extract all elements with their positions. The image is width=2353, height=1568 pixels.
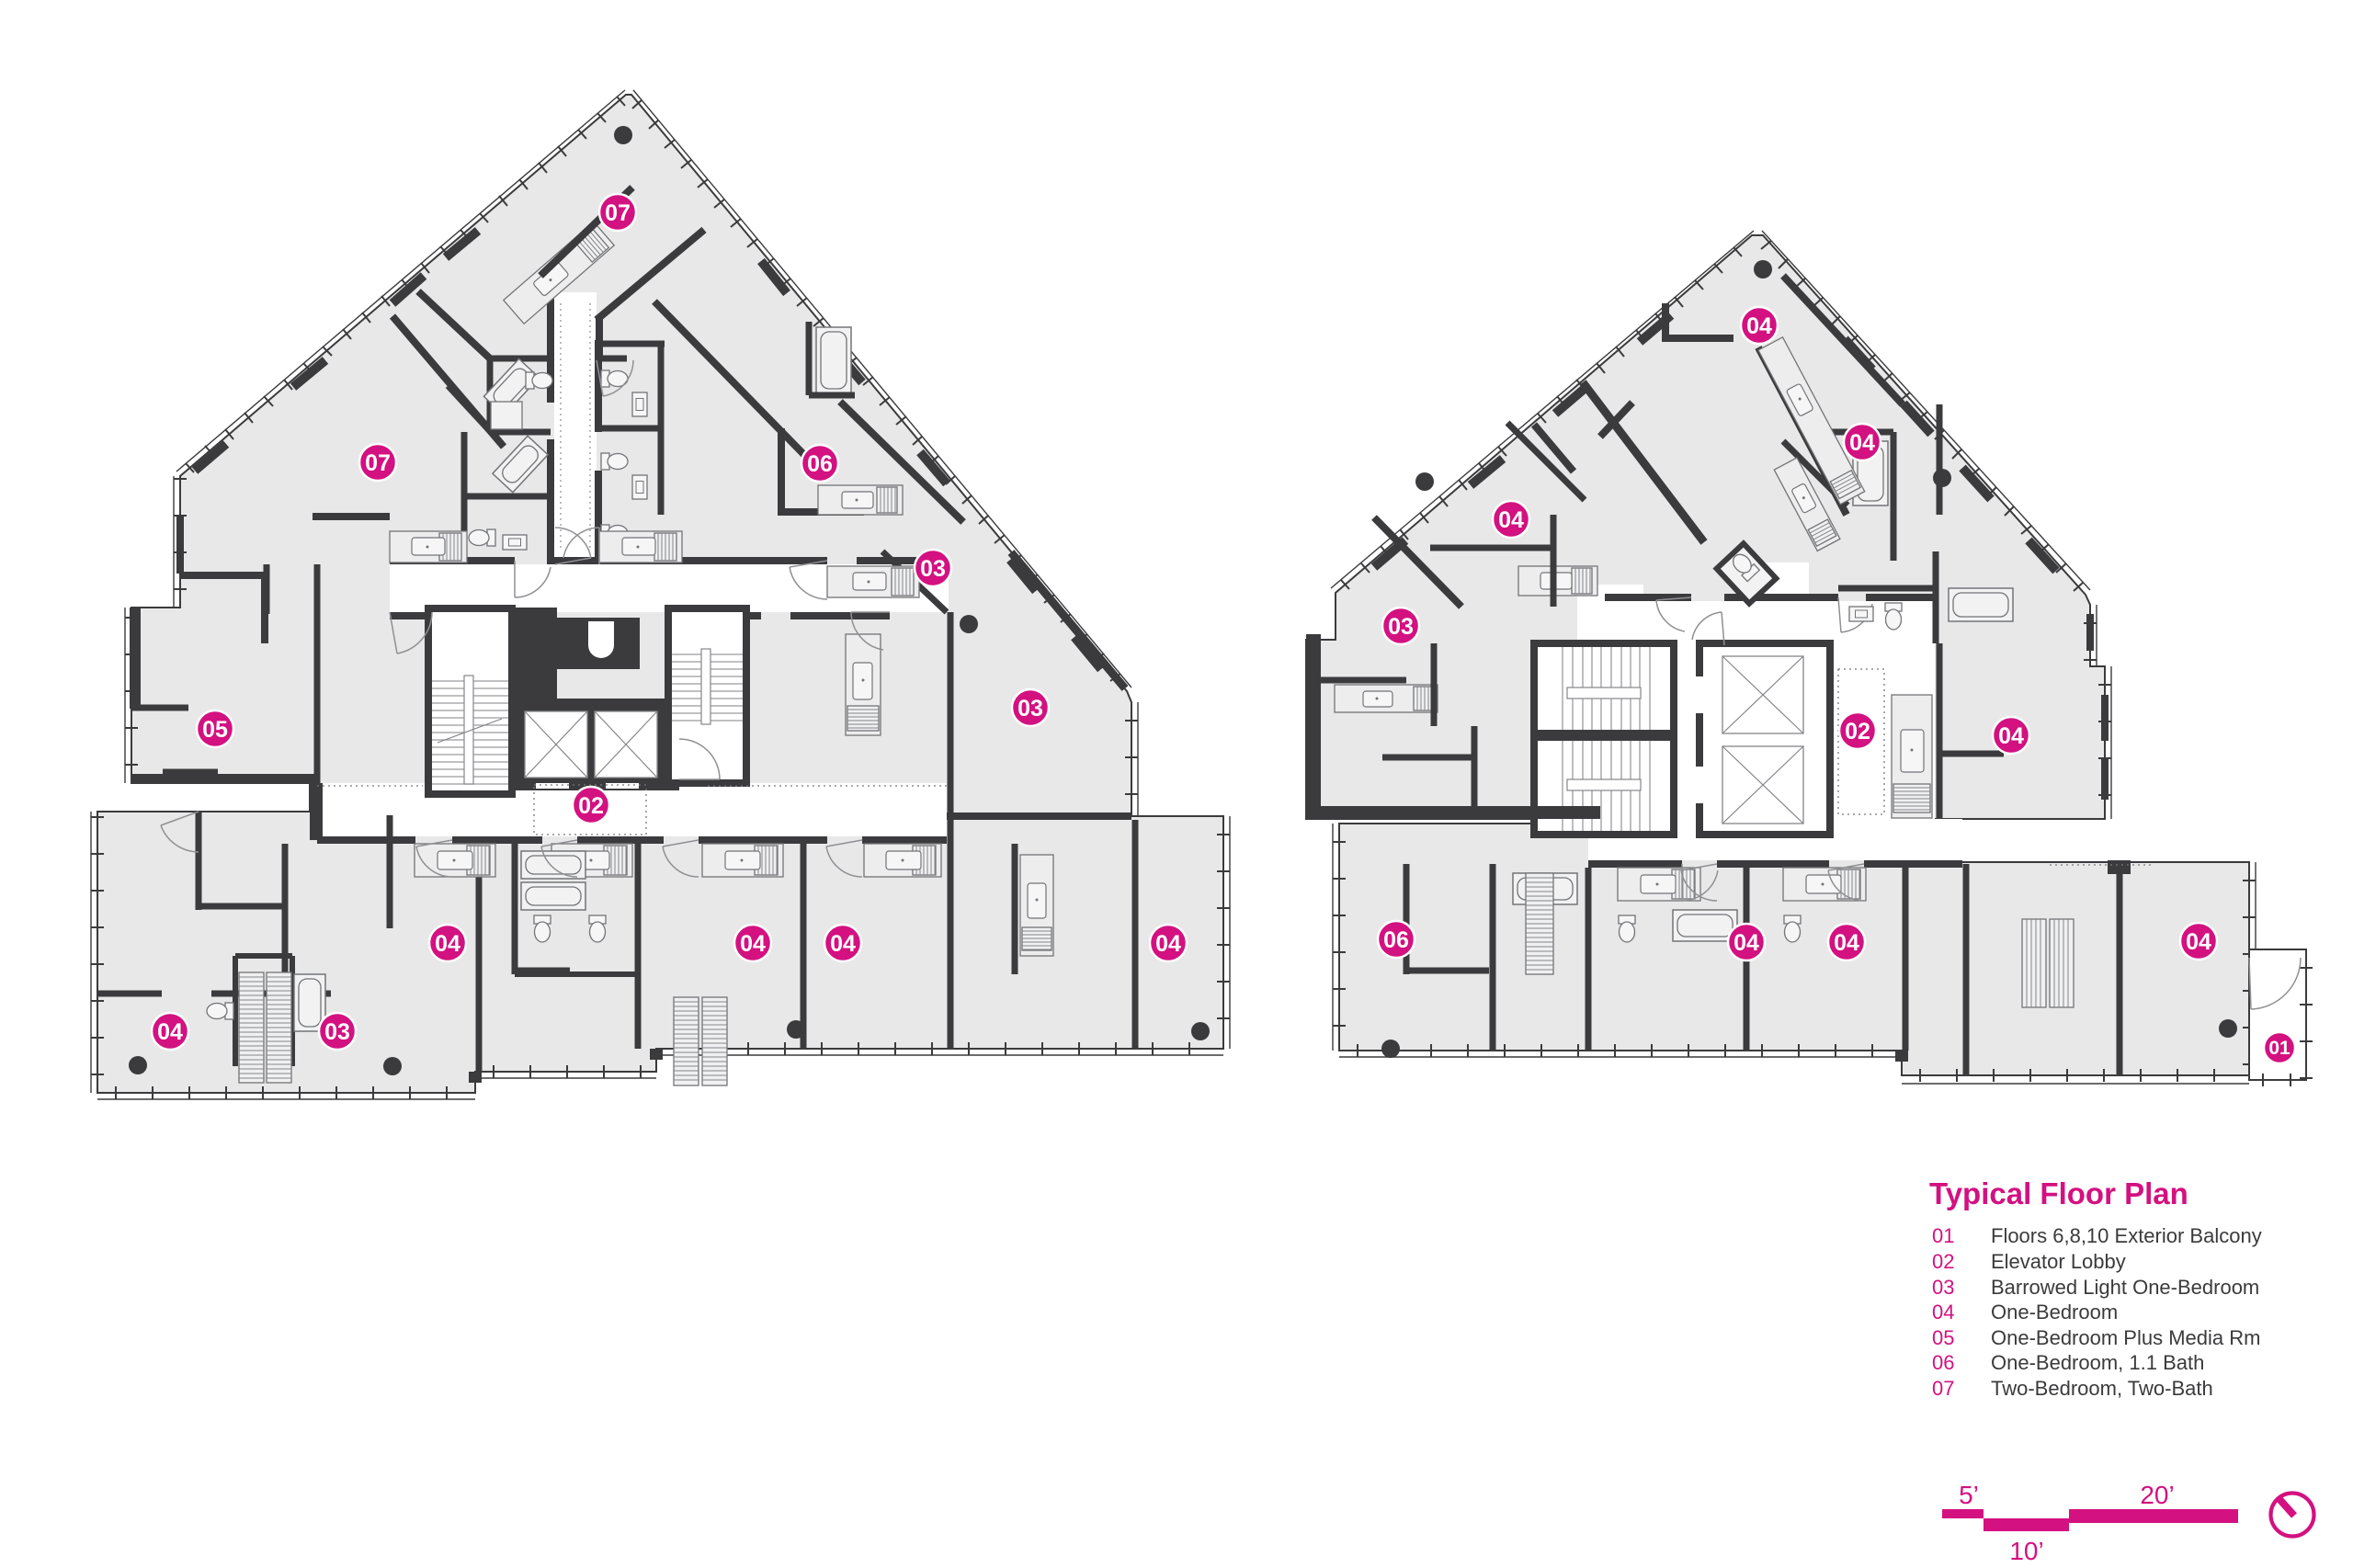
svg-text:03: 03 (1932, 1276, 1954, 1299)
svg-text:20’: 20’ (2140, 1481, 2174, 1509)
svg-text:One-Bedroom: One-Bedroom (1991, 1301, 2118, 1324)
svg-text:One-Bedroom Plus Media Rm: One-Bedroom Plus Media Rm (1991, 1326, 2260, 1349)
svg-text:02: 02 (578, 793, 604, 819)
svg-text:10’: 10’ (2009, 1537, 2043, 1565)
svg-text:Two-Bedroom, Two-Bath: Two-Bedroom, Two-Bath (1991, 1377, 2213, 1400)
svg-text:06: 06 (1932, 1351, 1954, 1374)
svg-text:07: 07 (605, 200, 631, 226)
svg-text:One-Bedroom, 1.1 Bath: One-Bedroom, 1.1 Bath (1991, 1351, 2204, 1374)
svg-text:03: 03 (324, 1019, 350, 1045)
svg-text:04: 04 (1932, 1301, 1954, 1324)
svg-text:Floors 6,8,10 Exterior Balcony: Floors 6,8,10 Exterior Balcony (1991, 1224, 2262, 1247)
svg-text:05: 05 (1932, 1326, 1954, 1349)
svg-text:04: 04 (830, 931, 856, 957)
svg-text:Barrowed Light One-Bedroom: Barrowed Light One-Bedroom (1991, 1276, 2259, 1299)
svg-text:06: 06 (1383, 927, 1409, 953)
svg-text:04: 04 (1733, 930, 1759, 956)
svg-text:04: 04 (2186, 929, 2211, 955)
svg-text:03: 03 (920, 556, 946, 582)
svg-text:04: 04 (1998, 723, 2024, 749)
svg-text:5’: 5’ (1959, 1481, 1979, 1509)
svg-text:04: 04 (157, 1019, 183, 1045)
svg-text:04: 04 (740, 931, 766, 957)
svg-text:02: 02 (1845, 719, 1870, 744)
svg-text:Typical Floor Plan: Typical Floor Plan (1929, 1176, 2188, 1210)
svg-text:06: 06 (807, 451, 833, 477)
svg-text:04: 04 (1849, 430, 1875, 456)
svg-text:01: 01 (2268, 1038, 2290, 1059)
svg-text:01: 01 (1932, 1224, 1954, 1247)
svg-text:03: 03 (1388, 614, 1414, 640)
svg-text:02: 02 (1932, 1250, 1954, 1273)
svg-text:05: 05 (202, 717, 228, 743)
svg-text:04: 04 (1498, 507, 1524, 533)
svg-text:04: 04 (435, 931, 460, 957)
svg-text:Elevator Lobby: Elevator Lobby (1991, 1250, 2126, 1273)
svg-text:07: 07 (365, 450, 391, 476)
svg-text:04: 04 (1155, 931, 1181, 957)
svg-text:03: 03 (1017, 696, 1043, 722)
svg-text:04: 04 (1834, 930, 1859, 956)
svg-text:07: 07 (1932, 1377, 1954, 1400)
svg-text:04: 04 (1746, 313, 1772, 339)
